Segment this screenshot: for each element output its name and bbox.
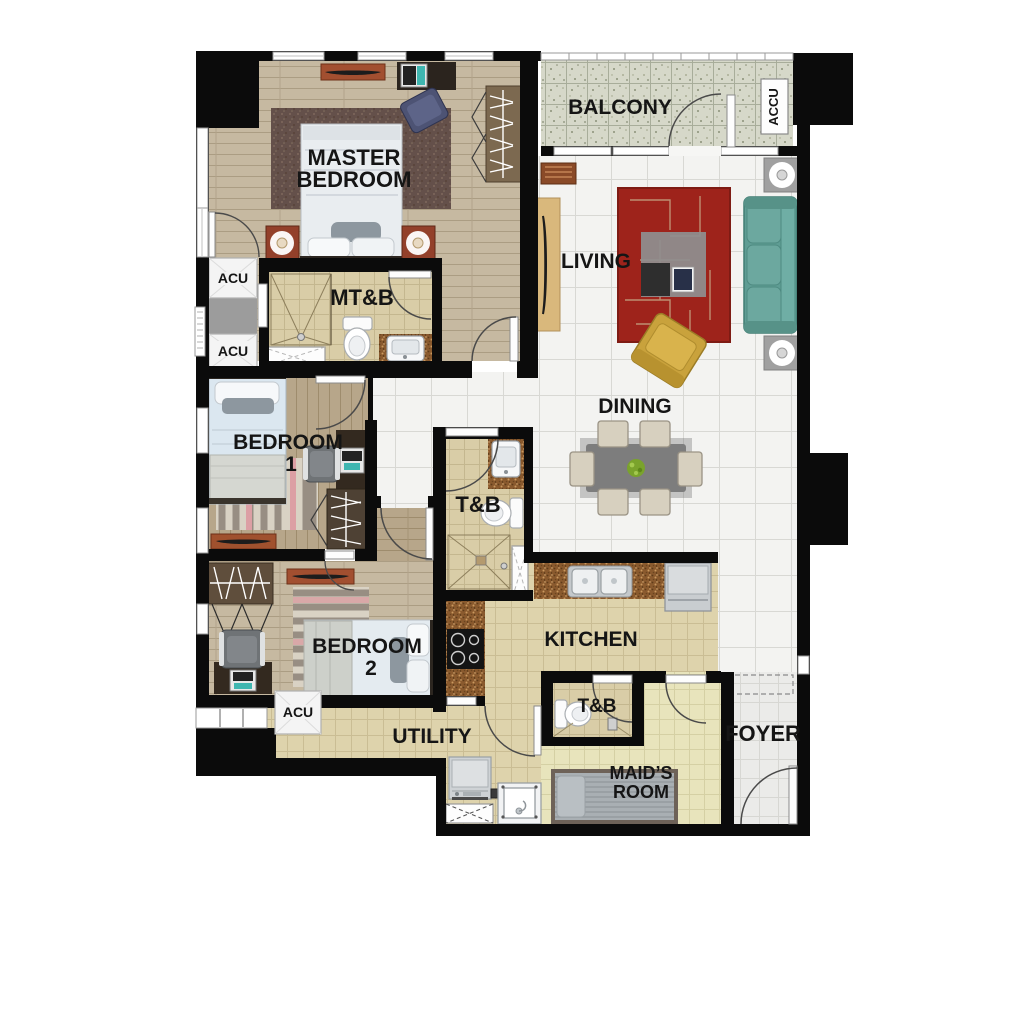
svg-text:T&B: T&B (455, 492, 500, 517)
svg-text:BEDROOM: BEDROOM (297, 167, 412, 192)
svg-text:ACCU: ACCU (766, 88, 781, 126)
svg-text:LIVING: LIVING (561, 250, 631, 273)
svg-text:UTILITY: UTILITY (392, 725, 471, 748)
svg-text:ROOM: ROOM (613, 782, 669, 802)
svg-text:BEDROOM: BEDROOM (312, 635, 422, 658)
svg-text:MAID’S: MAID’S (610, 763, 673, 783)
svg-text:ACU: ACU (283, 704, 313, 720)
svg-text:BALCONY: BALCONY (568, 96, 672, 119)
svg-text:ACU: ACU (218, 343, 248, 359)
svg-text:DINING: DINING (598, 395, 672, 418)
svg-text:BEDROOM: BEDROOM (233, 431, 343, 454)
svg-text:ACU: ACU (218, 270, 248, 286)
svg-text:FOYER: FOYER (725, 721, 801, 746)
svg-text:MT&B: MT&B (330, 285, 394, 310)
svg-text:1: 1 (285, 453, 297, 476)
svg-text:T&B: T&B (577, 696, 616, 717)
svg-text:2: 2 (365, 657, 377, 680)
svg-text:KITCHEN: KITCHEN (544, 628, 637, 651)
